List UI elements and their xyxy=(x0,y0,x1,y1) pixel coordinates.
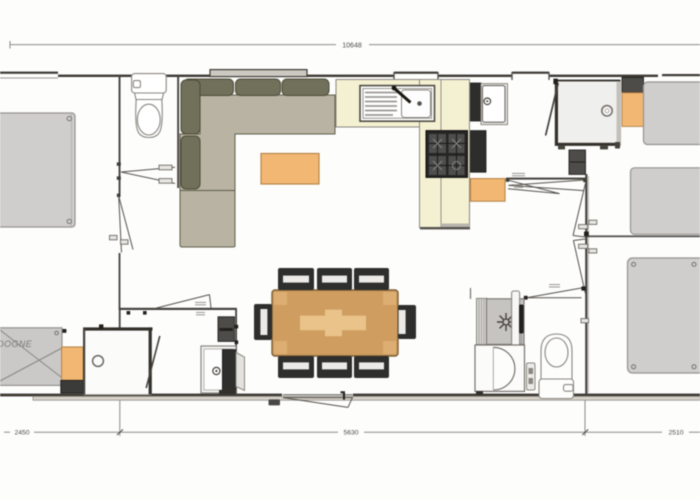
svg-text:10648: 10648 xyxy=(342,42,362,49)
svg-text:5630: 5630 xyxy=(343,430,358,437)
svg-text:2450: 2450 xyxy=(14,430,29,437)
svg-text:2510: 2510 xyxy=(668,430,683,437)
svg-text:DORDOGNE: DORDOGNE xyxy=(0,339,33,349)
